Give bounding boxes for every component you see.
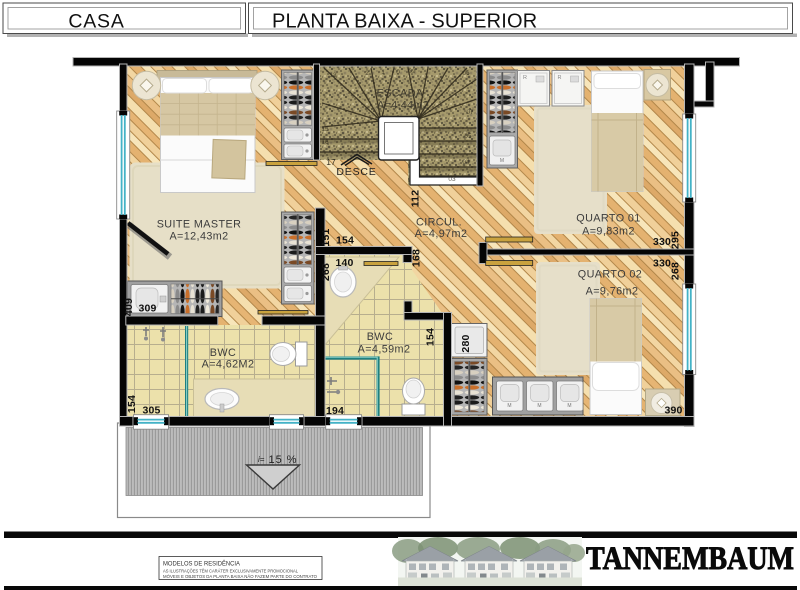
- svg-text:MÓVEIS E OBJETOS DA PLANTA BAI: MÓVEIS E OBJETOS DA PLANTA BAIXA NÃO FAZ…: [163, 573, 317, 580]
- svg-text:305: 305: [142, 405, 160, 417]
- svg-text:112: 112: [410, 190, 422, 208]
- svg-text:09: 09: [408, 68, 416, 75]
- svg-text:M: M: [537, 403, 541, 409]
- svg-text:A=4,59m2: A=4,59m2: [358, 344, 411, 356]
- svg-text:268: 268: [670, 262, 682, 280]
- svg-text:R: R: [558, 75, 562, 81]
- svg-text:A=9,83m2: A=9,83m2: [582, 226, 635, 238]
- svg-text:A=4,97m2: A=4,97m2: [415, 228, 468, 240]
- svg-text:DESCE: DESCE: [336, 166, 376, 178]
- svg-text:280: 280: [460, 334, 472, 352]
- svg-text:154: 154: [126, 395, 138, 413]
- svg-text:03: 03: [448, 176, 456, 183]
- svg-text:BWC: BWC: [210, 347, 236, 359]
- svg-text:2: 2: [365, 70, 369, 77]
- svg-text:A=12,43m2: A=12,43m2: [169, 231, 228, 243]
- svg-text:04: 04: [462, 159, 470, 166]
- svg-text:CASA: CASA: [68, 11, 124, 33]
- svg-text:268: 268: [320, 263, 332, 281]
- svg-text:330: 330: [653, 236, 671, 248]
- svg-text:140: 140: [335, 257, 353, 269]
- svg-text:TANNEMBAUM: TANNEMBAUM: [586, 541, 794, 577]
- svg-text:CIRCUL.: CIRCUL.: [416, 217, 462, 229]
- svg-text:15 %: 15 %: [268, 454, 297, 466]
- svg-text:SUITE MASTER: SUITE MASTER: [157, 219, 242, 231]
- svg-text:1: 1: [381, 69, 385, 76]
- svg-text:A=9,76m2: A=9,76m2: [586, 286, 639, 298]
- svg-text:PLANTA BAIXA - SUPERIOR: PLANTA BAIXA - SUPERIOR: [272, 11, 537, 33]
- svg-text:R: R: [523, 75, 527, 81]
- svg-text:295: 295: [670, 231, 682, 249]
- svg-text:330: 330: [653, 258, 671, 270]
- svg-text:0: 0: [396, 69, 400, 76]
- svg-text:BWC: BWC: [367, 331, 393, 343]
- svg-text:i=: i=: [258, 455, 265, 464]
- svg-text:05: 05: [464, 133, 472, 140]
- svg-text:194: 194: [326, 405, 344, 417]
- svg-text:15: 15: [321, 126, 329, 133]
- svg-text:M: M: [567, 403, 571, 409]
- svg-text:309: 309: [138, 303, 156, 315]
- svg-text:ESCADA: ESCADA: [376, 88, 423, 100]
- svg-text:154: 154: [336, 235, 354, 247]
- svg-text:MODELOS DE RESIDÊNCIA: MODELOS DE RESIDÊNCIA: [163, 559, 241, 568]
- svg-text:QUARTO 01: QUARTO 01: [576, 213, 640, 225]
- svg-text:154: 154: [425, 328, 437, 346]
- svg-text:M: M: [500, 158, 504, 164]
- svg-text:13: 13: [329, 72, 337, 79]
- svg-text:17: 17: [326, 157, 336, 167]
- svg-text:06: 06: [462, 70, 470, 77]
- svg-text:07: 07: [466, 109, 474, 116]
- svg-text:QUARTO 02: QUARTO 02: [578, 269, 642, 281]
- svg-text:409: 409: [123, 298, 135, 316]
- svg-text:A=4,44m2: A=4,44m2: [377, 100, 429, 112]
- svg-text:A=4,62M2: A=4,62M2: [202, 359, 255, 371]
- svg-text:168: 168: [411, 249, 423, 267]
- svg-text:390: 390: [664, 405, 682, 417]
- svg-text:151: 151: [320, 228, 332, 246]
- svg-text:16: 16: [321, 139, 329, 146]
- svg-text:M: M: [507, 403, 511, 409]
